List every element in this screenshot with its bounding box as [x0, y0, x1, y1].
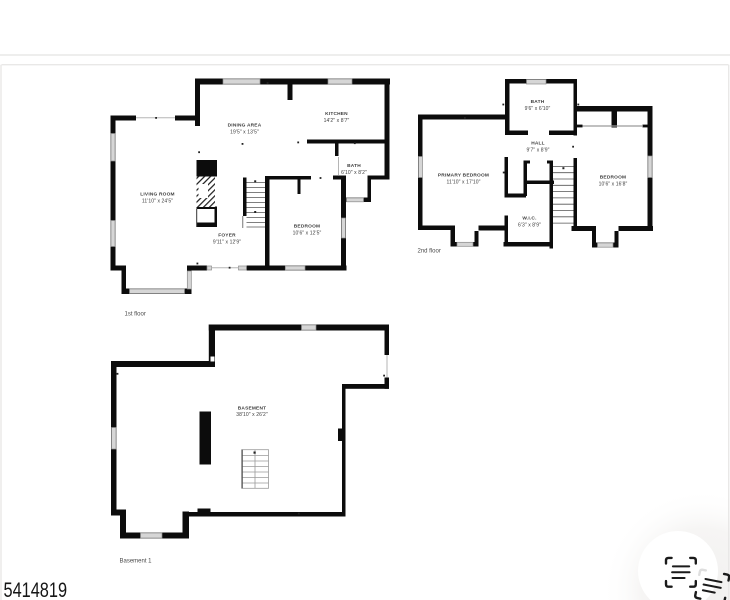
svg-text:BEDROOM: BEDROOM: [294, 224, 320, 230]
svg-text:KITCHEN: KITCHEN: [325, 111, 348, 117]
svg-text:2nd floor: 2nd floor: [418, 249, 441, 255]
svg-text:HALL: HALL: [531, 141, 545, 147]
svg-text:9'7" x 8'9": 9'7" x 8'9": [527, 148, 550, 154]
svg-text:PRIMARY BEDROOM: PRIMARY BEDROOM: [438, 173, 489, 179]
svg-text:DINING AREA: DINING AREA: [228, 123, 262, 129]
svg-text:11'10" x 17'10": 11'10" x 17'10": [446, 180, 480, 186]
svg-text:W.I.C.: W.I.C.: [522, 216, 536, 222]
svg-text:BATH: BATH: [531, 99, 545, 105]
svg-text:Basement 1: Basement 1: [120, 559, 153, 565]
svg-text:FOYER: FOYER: [218, 233, 236, 239]
svg-text:14'2" x 8'7": 14'2" x 8'7": [324, 118, 350, 124]
svg-text:19'5" x 13'5": 19'5" x 13'5": [230, 130, 259, 136]
svg-text:5414819: 5414819: [3, 579, 67, 600]
svg-text:9'6" x 6'10": 9'6" x 6'10": [525, 106, 551, 112]
svg-text:BASEMENT: BASEMENT: [238, 406, 267, 412]
svg-text:BATH: BATH: [347, 163, 361, 169]
svg-text:6'10" x 8'2": 6'10" x 8'2": [341, 170, 367, 176]
svg-text:38'10" x 26'2": 38'10" x 26'2": [236, 412, 268, 418]
svg-text:11'10" x 24'5": 11'10" x 24'5": [142, 199, 173, 205]
svg-text:10'6" x 12'5": 10'6" x 12'5": [293, 231, 322, 237]
svg-text:9'11" x 12'9": 9'11" x 12'9": [213, 240, 241, 246]
svg-text:10'6" x 16'8": 10'6" x 16'8": [599, 182, 628, 188]
svg-text:1st floor: 1st floor: [125, 312, 146, 318]
svg-text:LIVING ROOM: LIVING ROOM: [140, 192, 174, 198]
svg-text:BEDROOM: BEDROOM: [600, 175, 626, 181]
svg-text:6'3" x 8'9": 6'3" x 8'9": [518, 223, 541, 229]
